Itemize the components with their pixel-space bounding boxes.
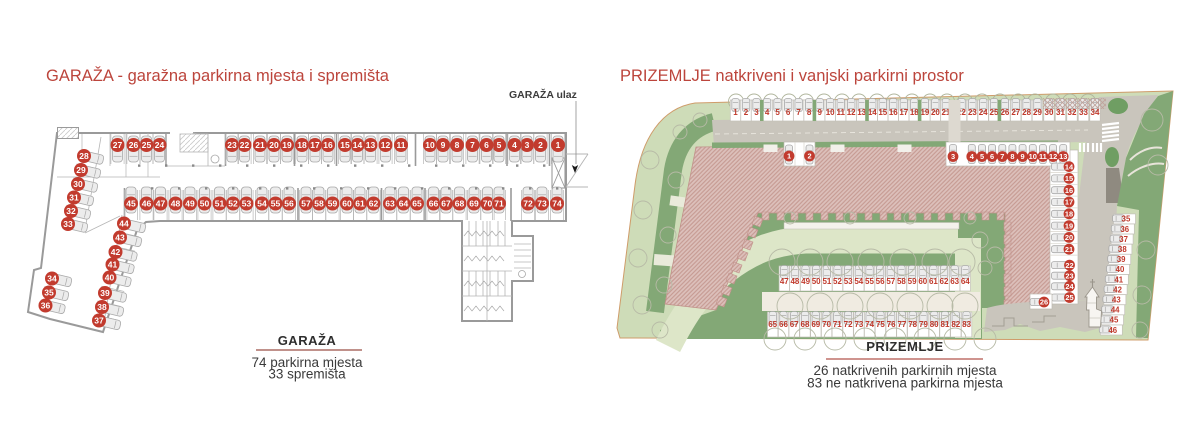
svg-text:19: 19	[282, 140, 292, 150]
svg-text:59: 59	[908, 277, 917, 286]
svg-text:4: 4	[765, 108, 770, 117]
svg-text:49: 49	[185, 199, 195, 209]
svg-text:75: 75	[876, 320, 885, 329]
svg-text:PRIZEMLJE: PRIZEMLJE	[866, 339, 943, 354]
svg-text:22: 22	[240, 140, 250, 150]
svg-text:25: 25	[990, 108, 999, 117]
svg-text:1: 1	[556, 140, 561, 150]
svg-text:23: 23	[227, 140, 237, 150]
svg-text:68: 68	[455, 199, 465, 209]
svg-text:48: 48	[790, 277, 799, 286]
svg-text:25: 25	[142, 140, 152, 150]
svg-text:25: 25	[1065, 293, 1073, 302]
svg-text:73: 73	[537, 199, 547, 209]
svg-text:20: 20	[1065, 233, 1073, 242]
svg-text:27: 27	[113, 140, 123, 150]
svg-text:48: 48	[171, 199, 181, 209]
svg-text:20: 20	[931, 108, 940, 117]
svg-text:54: 54	[854, 277, 863, 286]
svg-text:64: 64	[961, 277, 970, 286]
svg-text:21: 21	[255, 140, 265, 150]
svg-text:42: 42	[1113, 285, 1122, 294]
svg-text:64: 64	[399, 199, 409, 209]
svg-text:35: 35	[44, 288, 54, 298]
svg-text:58: 58	[897, 277, 906, 286]
svg-text:43: 43	[1112, 296, 1121, 305]
svg-text:66: 66	[779, 320, 788, 329]
svg-text:19: 19	[920, 108, 929, 117]
svg-text:13: 13	[1059, 152, 1067, 161]
svg-text:77: 77	[897, 320, 906, 329]
svg-text:9: 9	[817, 108, 822, 117]
svg-text:28: 28	[79, 151, 89, 161]
svg-text:28: 28	[1022, 108, 1031, 117]
svg-text:18: 18	[297, 140, 307, 150]
svg-text:50: 50	[812, 277, 821, 286]
svg-text:24: 24	[979, 108, 988, 117]
svg-text:27: 27	[1011, 108, 1020, 117]
svg-text:38: 38	[97, 302, 107, 312]
svg-text:80: 80	[930, 320, 939, 329]
svg-text:GARAŽA - garažna parkirna mjes: GARAŽA - garažna parkirna mjesta i sprem…	[46, 66, 390, 85]
svg-text:74: 74	[552, 199, 562, 209]
svg-text:15: 15	[878, 108, 887, 117]
svg-text:29: 29	[1033, 108, 1042, 117]
svg-text:1: 1	[787, 152, 791, 161]
svg-text:17: 17	[310, 140, 320, 150]
svg-text:41: 41	[1114, 275, 1123, 284]
svg-text:8: 8	[1010, 152, 1014, 161]
svg-text:14: 14	[353, 140, 363, 150]
svg-text:PRIZEMLJE natkriveni i vanjski: PRIZEMLJE natkriveni i vanjski parkirni …	[620, 67, 964, 85]
svg-text:7: 7	[796, 108, 801, 117]
svg-text:41: 41	[108, 260, 118, 270]
svg-text:83: 83	[962, 320, 971, 329]
svg-text:36: 36	[1120, 225, 1129, 234]
svg-text:39: 39	[1117, 255, 1126, 264]
svg-text:72: 72	[844, 320, 853, 329]
svg-text:33 spremišta: 33 spremišta	[268, 367, 346, 382]
svg-text:34: 34	[47, 274, 57, 284]
svg-text:72: 72	[523, 199, 533, 209]
svg-text:69: 69	[469, 199, 479, 209]
svg-text:56: 56	[284, 199, 294, 209]
svg-text:8: 8	[807, 108, 812, 117]
svg-text:26: 26	[1040, 298, 1048, 307]
svg-text:11: 11	[1039, 152, 1047, 161]
svg-text:26: 26	[129, 140, 139, 150]
svg-text:GARAŽA ulaz: GARAŽA ulaz	[509, 88, 577, 101]
svg-text:7: 7	[1000, 152, 1004, 161]
svg-text:18: 18	[1065, 210, 1073, 219]
svg-text:15: 15	[1065, 174, 1073, 183]
svg-text:23: 23	[968, 108, 977, 117]
svg-text:61: 61	[929, 277, 938, 286]
svg-text:73: 73	[854, 320, 863, 329]
svg-text:13: 13	[366, 140, 376, 150]
svg-text:33: 33	[1079, 108, 1088, 117]
svg-text:7: 7	[470, 140, 475, 150]
svg-text:10: 10	[826, 108, 835, 117]
svg-text:1: 1	[733, 108, 738, 117]
svg-text:45: 45	[126, 199, 136, 209]
svg-text:10: 10	[1029, 152, 1037, 161]
svg-text:6: 6	[786, 108, 791, 117]
svg-text:47: 47	[780, 277, 789, 286]
svg-text:9: 9	[1021, 152, 1025, 161]
svg-text:34: 34	[1091, 108, 1100, 117]
svg-text:66: 66	[429, 199, 439, 209]
svg-text:11: 11	[836, 108, 845, 117]
svg-text:16: 16	[323, 140, 333, 150]
svg-text:5: 5	[980, 152, 984, 161]
svg-text:37: 37	[94, 316, 104, 326]
svg-text:83 ne natkrivena parkirna mjes: 83 ne natkrivena parkirna mjesta	[807, 376, 1003, 391]
svg-text:70: 70	[483, 199, 493, 209]
svg-text:62: 62	[940, 277, 949, 286]
svg-text:61: 61	[355, 199, 365, 209]
svg-text:17: 17	[1065, 198, 1073, 207]
svg-text:54: 54	[257, 199, 267, 209]
svg-text:10: 10	[425, 140, 435, 150]
svg-text:78: 78	[908, 320, 917, 329]
svg-text:3: 3	[525, 140, 530, 150]
svg-text:11: 11	[397, 140, 406, 150]
svg-text:5: 5	[775, 108, 780, 117]
svg-text:14: 14	[1065, 162, 1074, 171]
svg-text:4: 4	[512, 140, 517, 150]
svg-text:49: 49	[801, 277, 810, 286]
svg-text:31: 31	[1056, 108, 1065, 117]
svg-text:53: 53	[844, 277, 853, 286]
svg-text:29: 29	[76, 165, 86, 175]
svg-text:35: 35	[1122, 215, 1131, 224]
svg-text:37: 37	[1119, 235, 1128, 244]
svg-text:56: 56	[876, 277, 885, 286]
svg-text:74: 74	[865, 320, 874, 329]
svg-text:8: 8	[455, 140, 460, 150]
svg-text:2: 2	[807, 152, 811, 161]
svg-text:16: 16	[1065, 186, 1073, 195]
svg-text:GARAŽA: GARAŽA	[278, 333, 337, 348]
svg-text:2: 2	[744, 108, 749, 117]
svg-text:39: 39	[100, 288, 110, 298]
svg-text:36: 36	[41, 301, 51, 311]
svg-text:20: 20	[269, 140, 279, 150]
svg-text:30: 30	[1045, 108, 1054, 117]
svg-text:40: 40	[105, 273, 115, 283]
svg-text:17: 17	[899, 108, 908, 117]
svg-text:23: 23	[1065, 271, 1073, 280]
svg-text:12: 12	[1049, 152, 1057, 161]
svg-text:22: 22	[1065, 261, 1073, 270]
svg-text:16: 16	[889, 108, 898, 117]
svg-text:60: 60	[342, 199, 352, 209]
svg-text:46: 46	[142, 199, 152, 209]
svg-text:5: 5	[497, 140, 502, 150]
svg-text:15: 15	[340, 140, 350, 150]
svg-text:60: 60	[918, 277, 927, 286]
svg-text:3: 3	[754, 108, 759, 117]
svg-text:12: 12	[847, 108, 856, 117]
svg-text:70: 70	[822, 320, 831, 329]
svg-text:46: 46	[1108, 326, 1117, 335]
svg-text:50: 50	[200, 199, 210, 209]
svg-text:51: 51	[215, 199, 225, 209]
svg-text:40: 40	[1116, 265, 1125, 274]
svg-text:59: 59	[328, 199, 338, 209]
svg-text:24: 24	[1065, 282, 1074, 291]
svg-text:31: 31	[69, 193, 79, 203]
svg-text:30: 30	[73, 179, 83, 189]
svg-text:12: 12	[381, 140, 391, 150]
svg-text:45: 45	[1110, 316, 1119, 325]
svg-text:63: 63	[950, 277, 959, 286]
svg-text:26: 26	[1000, 108, 1009, 117]
svg-text:42: 42	[111, 247, 121, 257]
svg-text:32: 32	[66, 206, 76, 216]
svg-text:67: 67	[790, 320, 799, 329]
svg-text:81: 81	[941, 320, 950, 329]
svg-text:19: 19	[1065, 221, 1073, 230]
svg-text:44: 44	[1111, 306, 1120, 315]
svg-text:57: 57	[886, 277, 895, 286]
svg-text:32: 32	[1068, 108, 1077, 117]
svg-text:69: 69	[811, 320, 820, 329]
svg-text:52: 52	[228, 199, 238, 209]
svg-text:6: 6	[990, 152, 994, 161]
svg-text:21: 21	[1065, 245, 1073, 254]
svg-text:6: 6	[484, 140, 489, 150]
svg-text:67: 67	[441, 199, 451, 209]
svg-text:57: 57	[301, 199, 311, 209]
svg-text:63: 63	[385, 199, 395, 209]
svg-text:55: 55	[865, 277, 874, 286]
svg-text:44: 44	[119, 219, 129, 229]
svg-text:53: 53	[242, 199, 252, 209]
svg-text:43: 43	[115, 233, 125, 243]
svg-text:9: 9	[441, 140, 446, 150]
svg-text:51: 51	[822, 277, 831, 286]
svg-text:14: 14	[868, 108, 877, 117]
svg-text:71: 71	[494, 199, 504, 209]
svg-text:58: 58	[314, 199, 324, 209]
svg-text:62: 62	[369, 199, 379, 209]
svg-text:55: 55	[271, 199, 281, 209]
svg-text:47: 47	[156, 199, 166, 209]
svg-text:52: 52	[833, 277, 842, 286]
svg-text:65: 65	[412, 199, 422, 209]
svg-text:3: 3	[951, 152, 955, 161]
svg-text:2: 2	[538, 140, 543, 150]
svg-text:24: 24	[155, 140, 165, 150]
svg-text:33: 33	[63, 219, 73, 229]
svg-text:38: 38	[1118, 245, 1127, 254]
